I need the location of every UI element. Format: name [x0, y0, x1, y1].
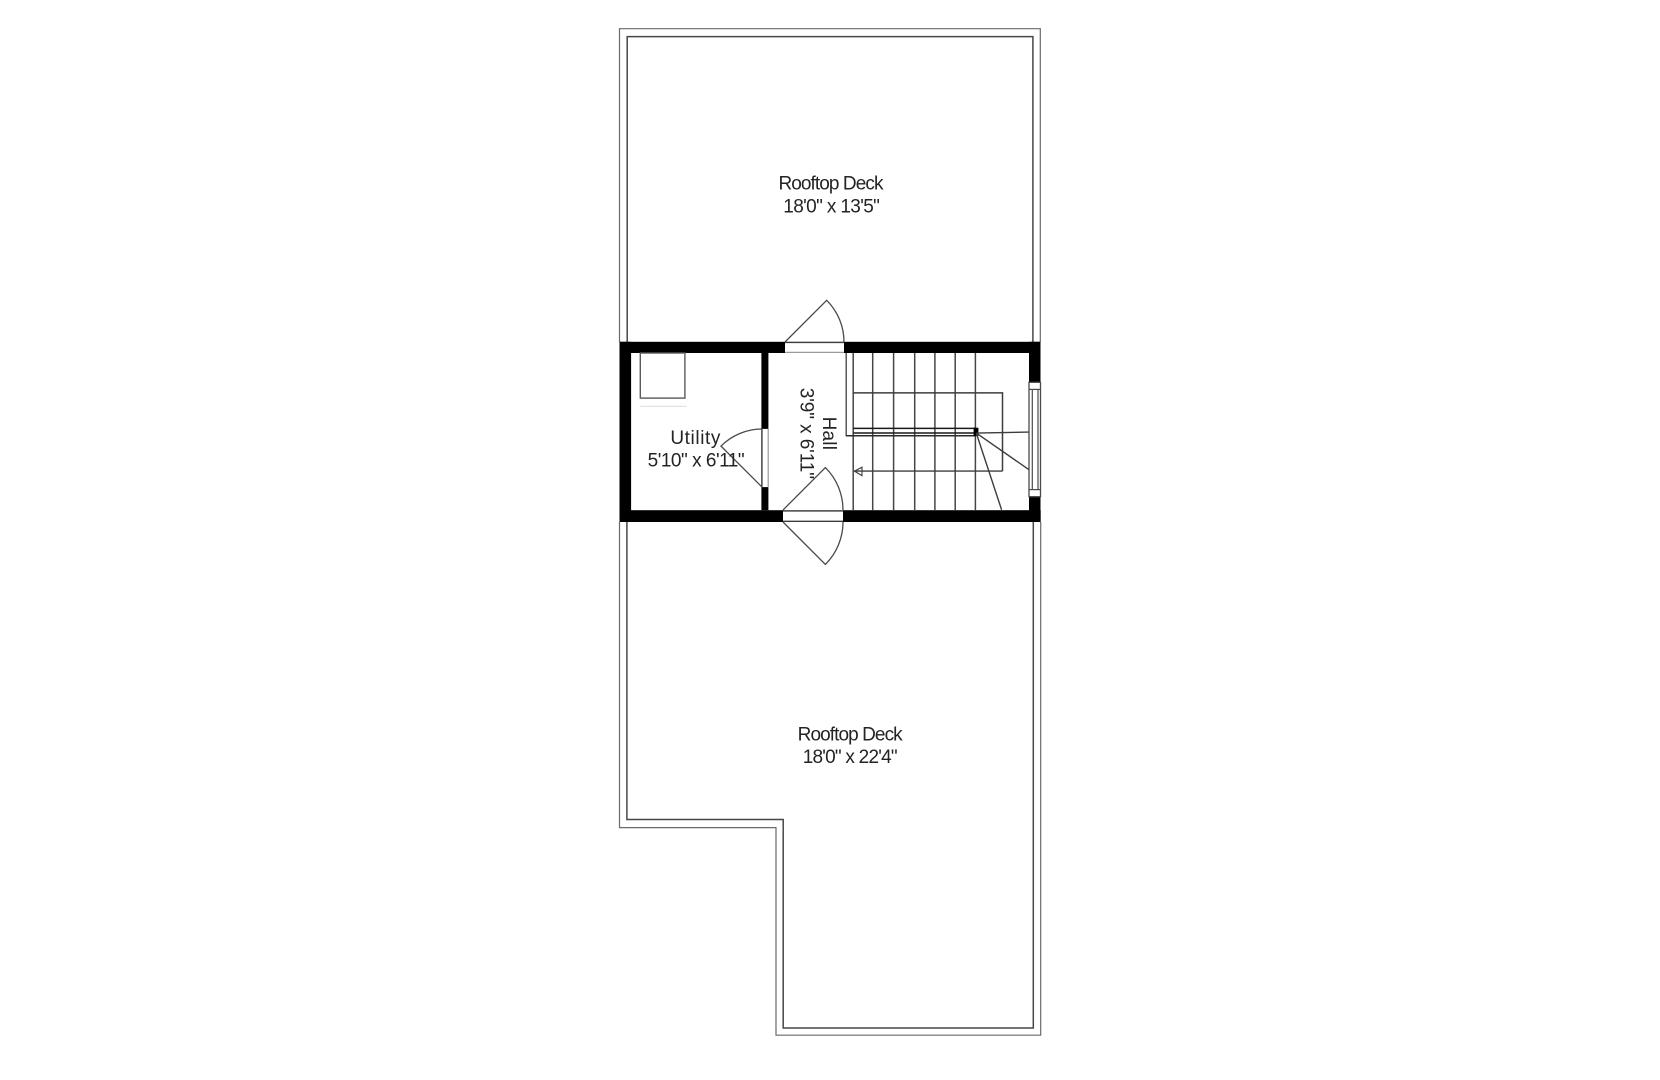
svg-text:3'9" x 6'11": 3'9" x 6'11": [796, 388, 817, 479]
svg-text:Utility: Utility: [670, 428, 721, 449]
svg-text:5'10" x 6'11": 5'10" x 6'11": [648, 450, 745, 471]
svg-text:Rooftop Deck: Rooftop Deck: [798, 724, 903, 745]
svg-text:18'0" x 22'4": 18'0" x 22'4": [803, 747, 897, 768]
svg-text:Hall: Hall: [818, 417, 839, 451]
svg-text:Rooftop Deck: Rooftop Deck: [778, 174, 883, 195]
svg-text:18'0" x 13'5": 18'0" x 13'5": [783, 197, 879, 218]
